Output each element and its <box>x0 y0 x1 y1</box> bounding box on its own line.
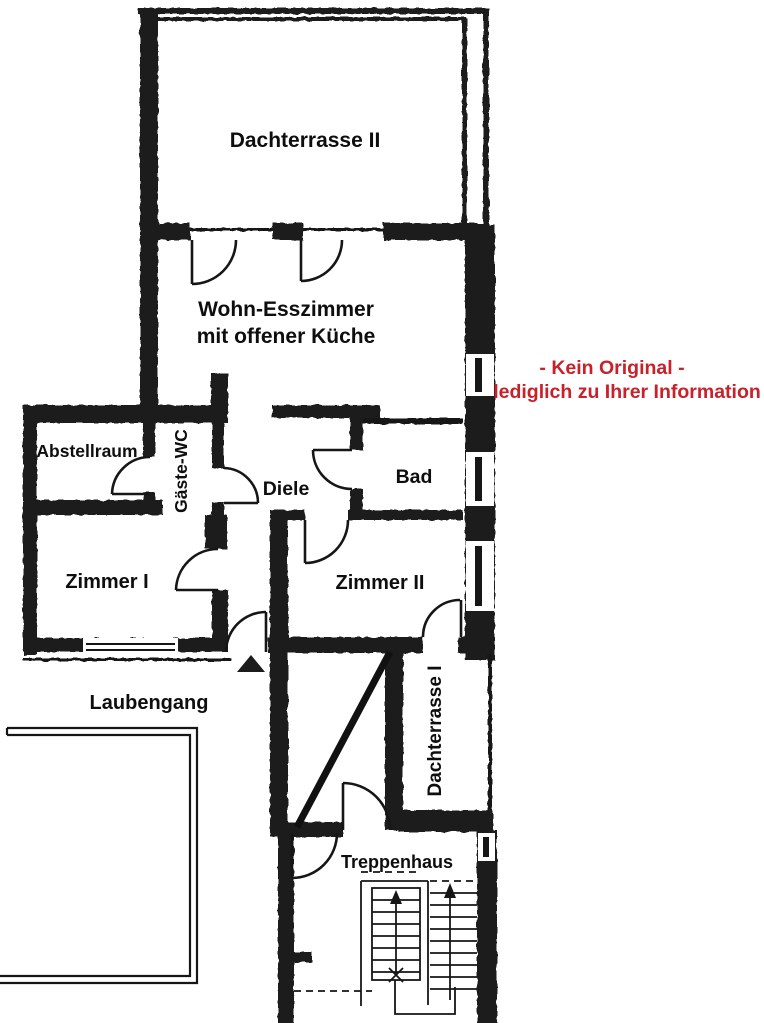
entrance-marker <box>237 655 265 672</box>
staircase <box>294 872 477 1014</box>
door-sloped-room <box>343 783 390 830</box>
window-living-room <box>466 354 494 396</box>
wall-segment <box>303 228 383 231</box>
label-abstellraum: Abstellraum <box>36 441 137 461</box>
window-zimmer-2 <box>466 541 494 611</box>
wall-segment <box>350 418 363 450</box>
wall-segment <box>360 418 463 424</box>
label-wohn-esszimmer-line2: mit offener Küche <box>197 325 376 348</box>
wall-segment <box>138 8 488 14</box>
door-gaeste-wc <box>224 468 258 503</box>
door-zimmer2-terrace <box>423 600 461 637</box>
wall-segment <box>458 637 465 653</box>
label-gaeste-wc: Gäste-WC <box>171 429 191 513</box>
wall-segment <box>23 405 37 655</box>
label-wohn-esszimmer-line1: Wohn-Esszimmer <box>198 298 374 321</box>
wall-segment <box>143 423 155 457</box>
door-treppenhaus <box>292 833 337 878</box>
wall-segment <box>23 500 163 515</box>
label-bad: Bad <box>396 466 433 488</box>
wall-segment <box>273 223 303 240</box>
door-zimmer-1 <box>176 549 218 590</box>
label-treppenhaus: Treppenhaus <box>341 852 453 872</box>
floor-plan-page: Dachterrasse II Wohn-Esszimmer mit offen… <box>0 0 764 1023</box>
wall-segment <box>212 502 224 515</box>
disclaimer-note: - Kein Original - lediglich zu Ihrer Inf… <box>493 357 761 403</box>
window-treppenhaus <box>478 833 495 861</box>
wall-segment <box>140 8 158 415</box>
wall-segment <box>398 810 493 832</box>
wall-segment <box>205 515 227 549</box>
wall-segment <box>212 423 224 468</box>
wall-segment <box>294 952 312 962</box>
wall-segment <box>348 510 463 520</box>
window-zimmer-1 <box>83 638 178 655</box>
wall-segment <box>23 658 231 661</box>
label-diele: Diele <box>263 478 310 500</box>
wall-segment <box>488 655 492 810</box>
label-dachterrasse-2: Dachterrasse II <box>230 129 381 152</box>
disclaimer-line2: lediglich zu Ihrer Information <box>493 381 761 403</box>
disclaimer-line1: - Kein Original - <box>539 357 684 379</box>
door-bad <box>313 450 352 489</box>
window-bad <box>466 452 494 506</box>
door-terrace2-left <box>192 240 236 284</box>
wall-segment <box>212 590 228 638</box>
door-apartment-entrance <box>226 612 266 652</box>
label-zimmer-2: Zimmer II <box>336 572 425 594</box>
label-dachterrasse-1: Dachterrasse I <box>425 666 446 797</box>
wall-segment <box>272 405 380 418</box>
wall-segment <box>190 228 273 231</box>
wall-segment <box>483 8 489 225</box>
floor-plan-drawing: Dachterrasse II Wohn-Esszimmer mit offen… <box>0 0 764 1023</box>
label-zimmer-1: Zimmer I <box>65 571 148 593</box>
label-laubengang: Laubengang <box>90 692 209 714</box>
wall-segment <box>150 223 190 240</box>
railing-laubengang <box>0 728 197 983</box>
wall-segment <box>462 18 467 225</box>
door-terrace2-right <box>301 240 342 281</box>
wall-segment <box>270 518 288 822</box>
wall-segment <box>144 17 466 21</box>
wall-segment <box>385 648 403 830</box>
door-abstellraum <box>112 457 150 494</box>
door-zimmer-2 <box>305 520 348 563</box>
wall-segment <box>23 405 217 423</box>
